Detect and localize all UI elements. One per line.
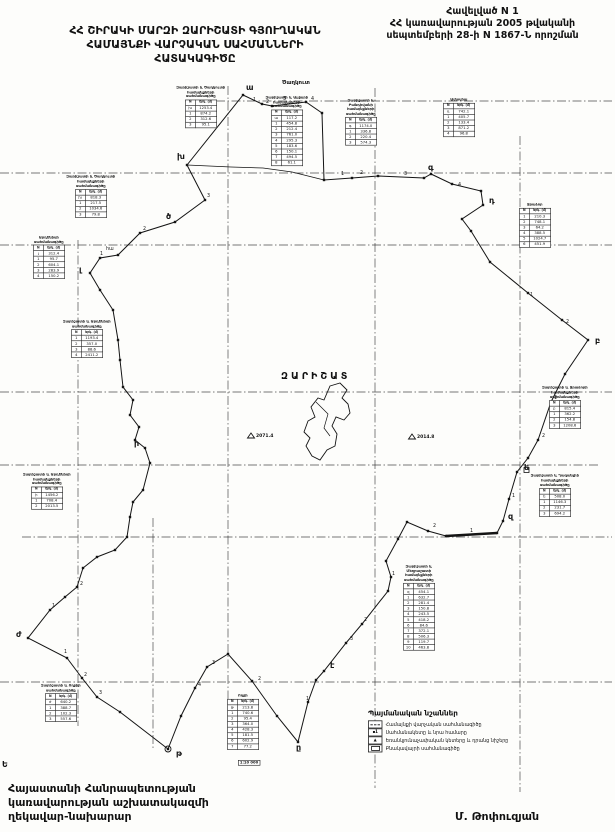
boundary-point-marker [406,521,408,523]
boundary-point-marker [81,677,83,679]
segment-number-label: 2 [433,523,436,529]
boundary-point-marker [76,586,78,588]
boundary-point-marker [49,609,51,611]
appendix-line1: Հավելված N 1 [355,6,610,18]
segment-number-label: 1 [52,603,55,609]
boundary-point-marker [64,596,66,598]
table-title-line: սահմանագիծը [66,184,116,188]
distance-value: 463.8 [413,645,434,651]
legend-symbol-point-icon: ▪1 [368,728,382,736]
table-title-line: սահմանագիծը [540,395,590,399]
table-title-line: համայնքների սահմանագիծը [22,478,72,486]
legend-item-label: Համայնքի վարչական սահմանագիծը [386,721,482,728]
neighbor-community-label: Ծաղկուտ [282,80,310,86]
map-title-line2: ՀԱՄԱՅՆՔԻ ՎԱՐՉԱԿԱՆ ՍԱՀՄԱՆՆԵՐԻ [30,38,360,52]
point-id: 3 [75,212,85,218]
boundary-point-marker [227,653,229,655]
distance-value: 2013.5 [41,503,62,509]
boundary-point-marker [397,538,399,540]
boundary-point-marker [423,177,425,179]
boundary-segment-table: Զարիշատի և Ջրաձորիհամայնքներիսահմանագիծը… [540,386,615,455]
distance-table: Nերկ. (մ)գ1174.01336.82220.43574.3 [345,117,377,146]
table-title-line: Զարիշատի և Մեղրաշատի [394,565,444,573]
boundary-point-marker [351,177,353,179]
boundary-point-marker [194,687,196,689]
segment-number-label: 2 [84,672,87,678]
distance-table: Nերկ. (մ)ա117.21454.82212.43761.04295.35… [271,109,303,165]
distance-table: Nերկ. (մ)զ454.11632.72281.43150.84243.55… [403,583,435,651]
segment-number-label: 3 [350,636,353,642]
distance-value: 1208.6 [559,423,580,429]
boundary-point-marker [114,549,116,551]
table-title-line: սահմանագիծը [36,689,86,693]
boundary-point-marker [180,715,182,717]
point-id: 4 [33,273,43,279]
boundary-segment-table: Զարիշատի և Ծաղկուտիհամայնքներիսահմանագիծ… [66,175,146,244]
legend-item: Համայնքի վարչական սահմանագիծը [368,720,516,728]
appendix-line3: սեպտեմբերի 28-ի N 1867-Ն որոշման [355,30,610,42]
segment-number-label: 2 [80,581,83,587]
table-title-line: Ամասիա [434,98,484,102]
distance-table: Nերկ. (մ)11193.42357.0388.642411.2 [71,329,103,358]
village-outline-inner [316,402,330,436]
distance-value: 77.2 [237,744,258,750]
boundary-point-marker [482,204,484,206]
boundary-segment-table: Զարիշատի և ՈղջիիսահմանագիծըNերկ. (մ)ժ640… [36,684,116,745]
map-title-line1: ՀՀ ՇԻՐԱԿԻ ՄԱՐԶԻ ԶԱՐԻՇԱՏԻ ԳՅՈՒՂԱԿԱՆ [30,24,360,38]
boundary-point-marker [461,218,463,220]
point-id: 8 [271,160,281,166]
table-row: 861.1 [271,160,302,166]
boundary-point-marker [385,560,387,562]
table-title-line: Ջրաձոր [510,203,560,207]
vertex-letter-label: ի [134,439,139,448]
boundary-segment-table: Զարիշատի և Ծաղկուտիհամայնքների սահմանագի… [176,86,256,154]
segment-number-label: 3 [207,193,210,199]
table-row: 777.2 [227,744,258,750]
table-row: 496.8 [443,131,474,137]
boundary-point-marker [27,637,29,639]
legend-items: Համայնքի վարչական սահմանագիծը▪1Սահմանակե… [368,720,516,752]
boundary-segment-table: Զարիշատի և Ղազանչիիհամայնքներիսահմանագիծ… [530,474,610,543]
boundary-segment-table: ԱմասիաNերկ. (մ)դ742.11405.72133.43871.24… [434,98,514,161]
point-id: 6 [519,241,529,247]
boundary-point-marker [516,471,518,473]
segment-number-label: հա [106,246,114,252]
distance-value: 574.3 [355,140,376,146]
boundary-point-marker [445,535,447,537]
vertex-letter-label: գ [428,163,434,172]
boundary-segment-table: Զարիշատի և Բանդիվանիհամայնքներիսահմանագի… [336,99,416,174]
point-id: 7 [227,744,237,750]
segment-number-label: 2 [364,617,367,623]
boundary-point-marker [129,516,131,518]
legend-symbol-dashline-icon [368,720,382,728]
point-id: 4 [443,131,453,137]
point-id: 10 [403,645,413,651]
table-title-line: սահմանագիծը [62,325,112,329]
community-name-label: ԶԱՐԻՇԱՏ [281,371,350,382]
official-title: Հայաստանի Հանրապետության կառավարության ա… [8,782,209,824]
distance-table: Nերկ. (մ)դ742.11405.72133.43871.2496.8 [443,103,475,137]
appendix-note: Հավելված N 1 ՀՀ կառավարության 2005 թվակա… [355,6,610,42]
legend-title: Պայմանական նշաններ [368,710,516,718]
boundary-point-marker [122,386,124,388]
distance-table: Nերկ. (մ)թ213.81740.6295.43364.04428.351… [227,699,259,750]
distance-table: Nերկ. (մ)1210.32748.1364.24388.551024.76… [519,208,551,248]
table-row: 11146.3 [539,499,570,505]
boundary-point-marker [430,173,432,175]
point-id: 3 [549,423,559,429]
boundary-point-marker [587,339,589,341]
segment-number-label: 1 [470,528,473,534]
distance-value: 150.2 [43,273,64,279]
legend-item: ▲Եռանկյունաչափական կետերը և դրանց նիշերը [368,736,516,744]
vertex-letter-label: զ [508,512,514,521]
vertex-letter-label: բ [595,336,600,345]
distance-value: 451.9 [529,241,550,247]
segment-number-label: 1 [306,696,309,702]
legend: Պայմանական նշաններ Համայնքի վարչական սահ… [368,710,518,763]
legend-item: ▪1Սահմանակետը և նրա համարը [368,728,516,736]
start-point-circle-dot [167,748,169,750]
boundary-point-marker [315,679,317,681]
boundary-point-marker [451,183,453,185]
table-title-line: սահմանագիծը [394,578,444,582]
table-row: 3694.2 [539,511,570,517]
boundary-point-marker [387,590,389,592]
triangulation-point-icon [248,433,255,438]
boundary-point-marker [427,530,429,532]
boundary-point-marker [537,439,539,441]
boundary-point-marker [323,670,325,672]
point-id: 3 [539,511,549,517]
boundary-point-marker [66,657,68,659]
map-title: ՀՀ ՇԻՐԱԿԻ ՄԱՐԶԻ ԶԱՐԻՇԱՏԻ ԳՅՈՒՂԱԿԱՆ ՀԱՄԱՅ… [30,24,360,66]
boundary-point-marker [480,190,482,192]
signature: Մ. Թոփուզյան [455,810,539,823]
vertex-letter-label: դ [489,196,495,205]
distance-table: Nերկ. (մ)խ1253.41874.22312.6395.1 [185,99,217,128]
boundary-point-marker [129,414,131,416]
boundary-point-marker [132,399,134,401]
legend-symbol-triangle-icon: ▲ [368,736,382,744]
table-row: գ1174.0 [345,123,376,129]
distance-table: Nերկ. (մ)բ815.41362.22154.831208.6 [549,400,581,429]
official-line3: ղեկավար-նախարար [8,810,209,824]
boundary-point-marker [138,426,140,428]
legend-item-label: Բնակավայրի սահմանագիծը [386,745,460,752]
boundary-segment-table: ՈղջիNերկ. (մ)թ213.81740.6295.43364.04428… [218,694,298,784]
distance-value: 95.1 [195,122,216,128]
boundary-point-marker [361,623,363,625]
boundary-segment-table: Զարիշատի և Ալվարիհամայնքների սահմանագիծը… [262,96,342,209]
boundary-point-marker [204,199,206,201]
boundary-point-marker [508,498,510,500]
table-row: 22013.5 [31,503,62,509]
map-title-line3: ՀԱՏԱԿԱԳԻԾԸ [30,52,360,66]
table-row: 4150.2 [33,273,64,279]
official-line1: Հայաստանի Հանրապետության [8,782,209,796]
table-row: 395.1 [185,122,216,128]
legend-item-label: Եռանկյունաչափական կետերը և դրանց նիշերը [386,737,509,744]
segment-number-label: 4 [458,182,461,188]
table-row: 10463.8 [403,645,434,651]
boundary-segment-table: Զարիշատի և ԱրդենիսիսահմանագիծըNերկ. (մ)1… [62,320,142,381]
boundary-segment-table: Զարիշատի և Արդենիսիհամայնքների սահմանագի… [22,473,102,532]
vertex-letter-label: ժ [16,630,22,639]
table-row: 3574.3 [345,140,376,146]
boundary-point-marker [119,711,121,713]
boundary-point-marker [251,680,253,682]
official-line2: կառավարության աշխատակազմի [8,796,209,810]
table-title-line: համայնքների սահմանագիծը [262,101,312,109]
boundary-point-marker [206,666,208,668]
boundary-point-marker [126,536,128,538]
distance-table: Nերկ. (մ)լ312.4195.72604.13283.94150.2 [33,245,65,279]
segment-number-label: 2 [566,319,569,325]
table-row: 6451.9 [519,241,550,247]
boundary-point-marker [112,309,114,311]
boundary-point-marker [527,292,529,294]
legend-item-label: Սահմանակետը և նրա համարը [386,729,467,736]
boundary-point-marker [186,164,188,166]
table-title-line: Զարիշատի և Բանդիվանի [336,99,386,107]
table-row: 42411.2 [71,352,102,358]
segment-number-label: 1 [530,292,533,298]
segment-number-label: 2 [258,676,261,682]
triangulation-point-label: 2014.8 [417,434,434,440]
vertex-letter-label: ե [524,463,529,472]
table-row: 21034.6 [75,206,106,212]
boundary-point-marker [489,261,491,263]
boundary-point-marker [377,175,379,177]
boundary-point-marker [564,373,566,375]
vertex-letter-label: թ [176,749,183,758]
legend-symbol-rect-icon [368,744,382,752]
point-id: 4 [71,352,81,358]
vertex-letter-label: ծ [166,212,171,221]
stray-mark: Ե [2,760,8,769]
distance-table: Nերկ. (մ)ի1456.21708.422013.5 [31,486,63,509]
boundary-point-marker [527,457,529,459]
boundary-point-marker [96,556,98,558]
legend-item: Բնակավայրի սահմանագիծը [368,744,516,752]
boundary-point-marker [144,447,146,449]
point-id: 3 [45,716,55,722]
boundary-point-marker [470,230,472,232]
boundary-point-marker [82,567,84,569]
boundary-point-marker [174,221,176,223]
appendix-line2: ՀՀ կառավարության 2005 թվականի [355,18,610,30]
boundary-point-marker [561,319,563,321]
segment-number-label: 1 [512,493,515,499]
point-id: 2 [31,503,41,509]
table-row: 31208.6 [549,423,580,429]
segment-number-label: 1 [64,649,67,655]
boundary-point-marker [132,501,134,503]
boundary-point-marker [496,532,498,534]
segment-number-label: 3 [212,660,215,666]
table-title-line: սահմանագիծը [530,483,580,487]
distance-table: Nերկ. (մ)ե508.011146.32231.73694.2 [539,488,571,517]
distance-value: 694.2 [549,511,570,517]
distance-value: 79.8 [85,212,106,218]
boundary-point-marker [142,489,144,491]
table-row: խ1253.4 [185,105,216,111]
table-title-line: սահմանագիծը [336,112,386,116]
table-row: 11193.4 [71,335,102,341]
boundary-point-marker [117,254,119,256]
scanned-map-page: { "header": { "appendix_line1": "Հավելվա… [0,0,615,832]
boundary-point-marker [149,462,151,464]
table-row: 51024.7 [519,236,550,242]
boundary-point-marker [502,520,504,522]
table-row: ի1456.2 [31,492,62,498]
segment-number-label: 4 [198,682,201,688]
distance-table: Nերկ. (մ)ժ640.21388.72102.33557.6 [45,693,77,722]
distance-table: Nերկ. (մ)խ818.31217.521034.6379.8 [75,189,107,218]
table-title-line: Ողջի [218,694,268,698]
boundary-point-marker [345,642,347,644]
table-row: 3557.6 [45,716,76,722]
boundary-segment-table: Արդենիսի սահմանագիծըNերկ. (մ)լ312.4195.7… [24,236,104,305]
table-title-line: համայնքների սահմանագիծը [176,91,226,99]
point-id: 3 [185,122,195,128]
triangulation-point-label: 2071.4 [256,433,273,439]
boundary-segment-table: Զարիշատի և Մեղրաշատիհամայնքներիսահմանագի… [394,565,474,703]
point-id: 3 [345,140,355,146]
triangulation-point-icon [409,434,416,439]
village-outline [304,383,350,460]
distance-value: 96.8 [453,131,474,137]
vertex-letter-label: է [330,661,335,670]
distance-value: 557.6 [55,716,76,722]
table-row: 379.8 [75,212,106,218]
boundary-segment-table: ՋրաձորNերկ. (մ)1210.32748.1364.24388.551… [510,203,590,275]
distance-value: 2411.2 [81,352,102,358]
distance-value: 61.1 [281,160,302,166]
